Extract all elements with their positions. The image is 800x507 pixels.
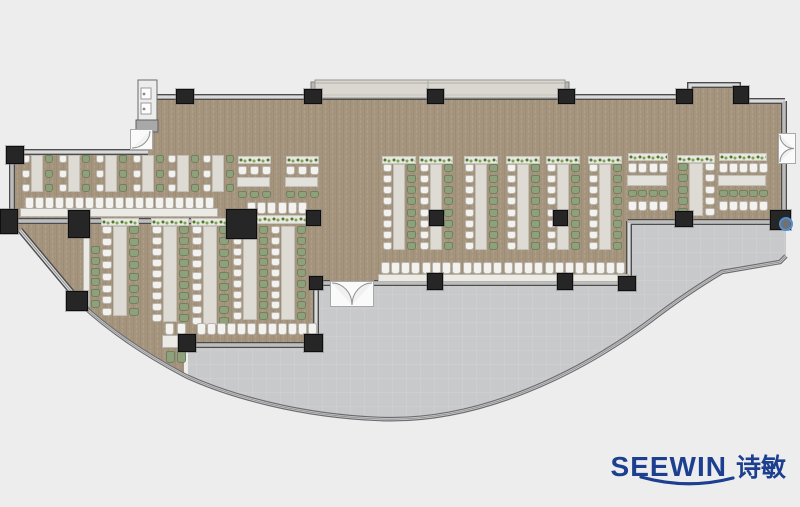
structural-column (427, 273, 443, 290)
structural-column (309, 276, 323, 290)
structural-column (553, 210, 568, 226)
door-swing-icon (330, 281, 374, 307)
door-swing-icon (130, 129, 153, 150)
structural-column (558, 89, 575, 104)
structural-column (226, 209, 257, 239)
logo-swoosh-icon (637, 476, 737, 488)
structural-column (675, 211, 693, 227)
structural-column (178, 334, 196, 352)
structural-column (304, 334, 323, 352)
structural-column (176, 89, 194, 104)
structural-column (676, 89, 693, 104)
structural-column (304, 89, 322, 104)
blue-circle-marker (779, 217, 793, 231)
door-swing-icon (778, 133, 796, 164)
structural-column (66, 291, 88, 311)
door (130, 129, 153, 150)
structural-column (429, 210, 444, 226)
structural-column (68, 210, 90, 238)
structural-column (6, 146, 24, 164)
structural-column (618, 276, 636, 291)
floor-plan-screenshot: SEEWIN 诗敏 (0, 0, 800, 507)
structural-column (733, 86, 749, 104)
structural-column (427, 89, 444, 104)
structure-overlay-layer (0, 0, 800, 507)
structural-column (0, 209, 18, 234)
brand-logo: SEEWIN 诗敏 (611, 453, 786, 481)
door (778, 133, 796, 164)
structural-column (306, 210, 321, 226)
door (330, 281, 374, 307)
brand-logo-chinese: 诗敏 (736, 456, 786, 481)
structural-column (557, 273, 573, 290)
